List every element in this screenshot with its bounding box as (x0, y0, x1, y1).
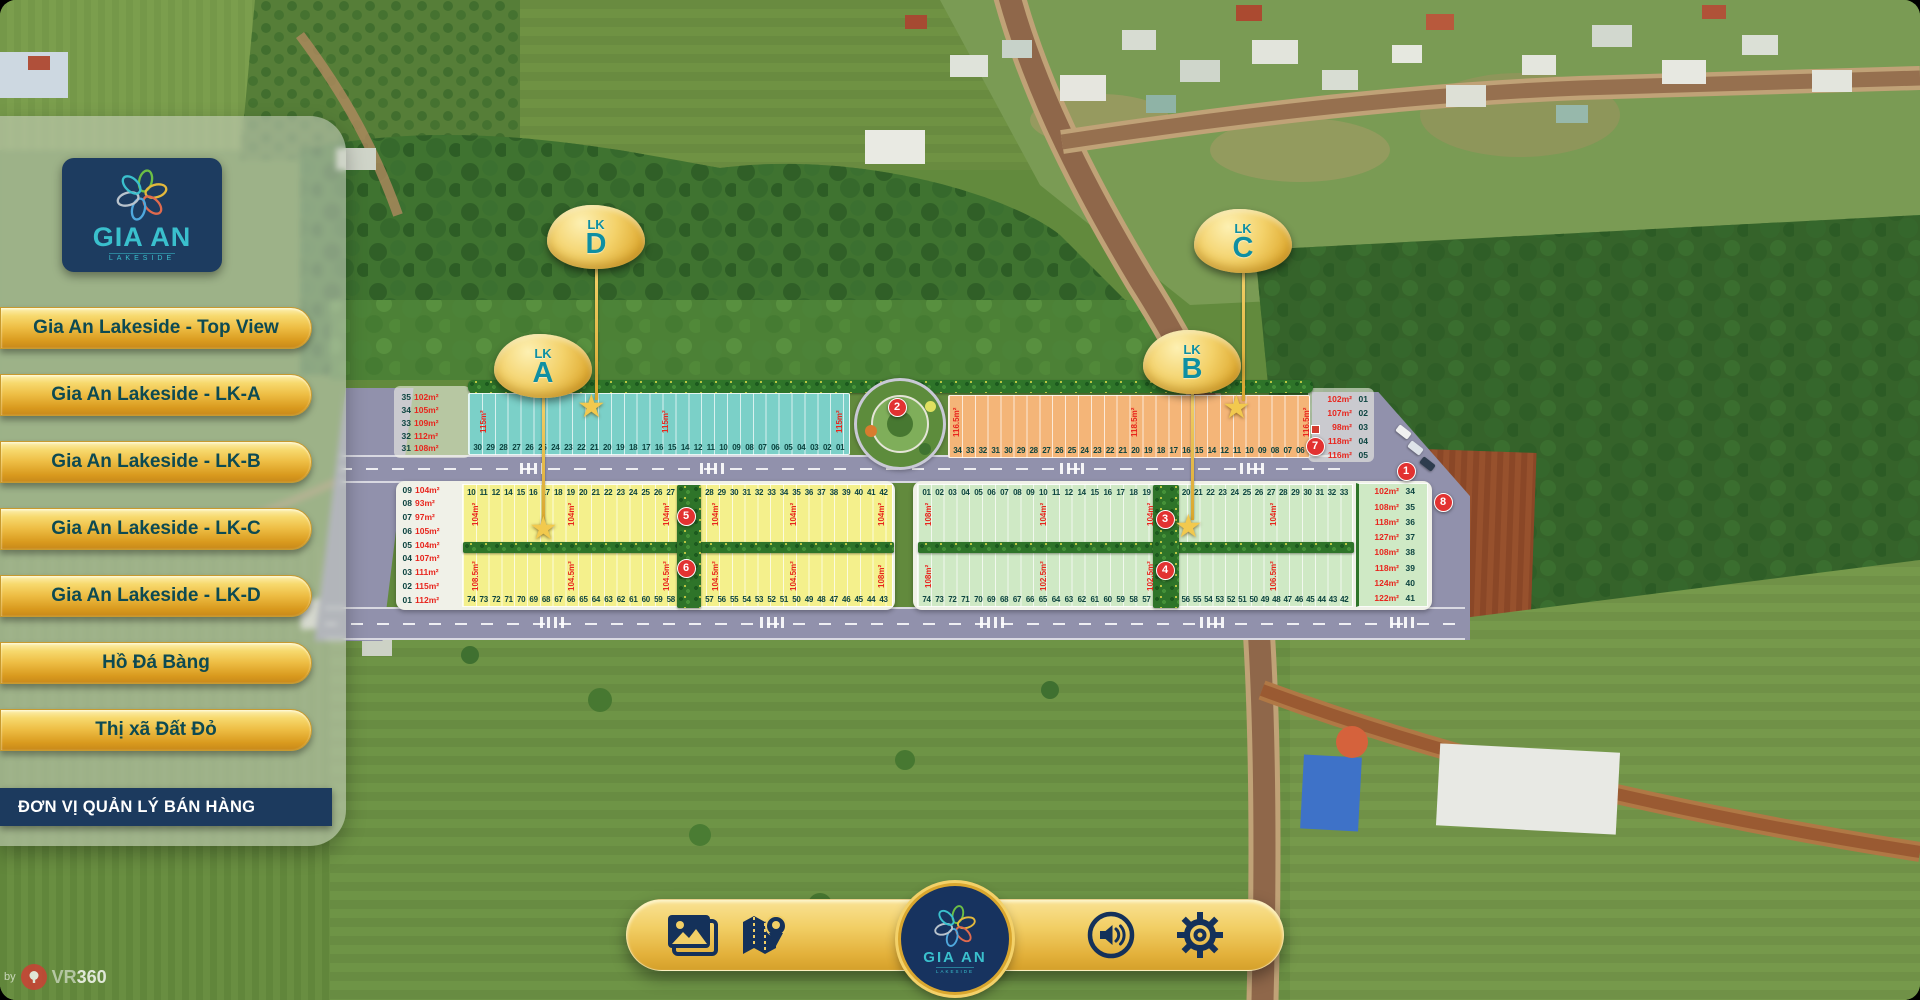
settings-button[interactable] (1175, 910, 1225, 960)
poi-marker-6[interactable]: 6 (677, 559, 696, 578)
poi-marker-5[interactable]: 5 (677, 507, 696, 526)
balloon-label-letter: D (586, 232, 607, 257)
parked-car (1419, 456, 1436, 472)
brand-name: GIA AN (93, 224, 192, 251)
poi-marker-7[interactable]: 7 (1306, 437, 1325, 456)
balloon-stem-lk-a (542, 395, 545, 522)
balloon-label-letter: C (1233, 236, 1254, 261)
balloon-lk-a[interactable]: LKA (494, 334, 592, 398)
balloon-label-letter: B (1182, 357, 1203, 382)
audio-icon (1087, 911, 1135, 959)
poi-marker-2[interactable]: 2 (888, 398, 907, 417)
entrance-flag (1311, 425, 1320, 434)
watermark-prefix: by (4, 971, 16, 983)
balloon-stem-lk-c (1242, 270, 1245, 401)
audio-button[interactable] (1087, 911, 1135, 959)
sidebar-item-lk-a[interactable]: Gia An Lakeside - LK-A (0, 374, 312, 416)
balloon-stem-lk-b (1191, 391, 1194, 520)
gia-an-flower-logo (931, 904, 979, 948)
brand-subtitle: LAKESIDE (109, 253, 175, 262)
sidebar-panel: GIA AN LAKESIDE Gia An Lakeside - Top Vi… (0, 116, 346, 846)
project-logo-card: GIA AN LAKESIDE (62, 158, 222, 272)
bottom-toolbar: GIA AN LAKESIDE (626, 899, 1284, 971)
poi-marker-3[interactable]: 3 (1156, 510, 1175, 529)
gallery-icon (665, 912, 719, 958)
sidebar-item-lk-c[interactable]: Gia An Lakeside - LK-C (0, 508, 312, 550)
poi-marker-1[interactable]: 1 (1397, 462, 1416, 481)
gallery-button[interactable] (665, 912, 719, 958)
star-marker-lk-a[interactable]: ★ (529, 512, 558, 544)
sidebar-item-lk-d[interactable]: Gia An Lakeside - LK-D (0, 575, 312, 617)
poi-marker-4[interactable]: 4 (1156, 561, 1175, 580)
star-marker-lk-d[interactable]: ★ (577, 390, 606, 422)
brand-subtitle: LAKESIDE (936, 967, 974, 974)
vr360-watermark: by VR360 (4, 964, 107, 990)
balloon-stem-lk-d (595, 266, 598, 400)
minimap-button[interactable] (739, 910, 789, 960)
poi-marker-8[interactable]: 8 (1434, 493, 1453, 512)
balloon-label-letter: A (533, 361, 554, 386)
sidebar-item-ho-da-bang[interactable]: Hồ Đá Bàng (0, 642, 312, 684)
sidebar-item-top-view[interactable]: Gia An Lakeside - Top View (0, 307, 312, 349)
vr360-badge-icon (21, 964, 47, 990)
star-marker-lk-c[interactable]: ★ (1222, 391, 1251, 423)
sidebar-item-thi-xa-dat-do[interactable]: Thị xã Đất Đỏ (0, 709, 312, 751)
map-location-icon (739, 910, 789, 960)
gear-icon (1175, 910, 1225, 960)
gia-an-flower-logo (113, 168, 171, 222)
vr360-brand: VR360 (52, 968, 107, 986)
virtual-tour-stage: 3029282726252423222120191817161514121110… (0, 0, 1920, 1000)
balloon-lk-d[interactable]: LKD (547, 205, 645, 269)
sales-manager-button[interactable]: ĐƠN VỊ QUẢN LÝ BÁN HÀNG (0, 788, 332, 826)
star-marker-lk-b[interactable]: ★ (1174, 510, 1203, 542)
brand-name: GIA AN (923, 950, 986, 965)
center-logo-button[interactable]: GIA AN LAKESIDE (898, 883, 1012, 995)
balloon-lk-b[interactable]: LKB (1143, 330, 1241, 394)
parked-car (1395, 424, 1412, 440)
parked-car (1407, 440, 1424, 456)
balloon-lk-c[interactable]: LKC (1194, 209, 1292, 273)
sidebar-item-lk-b[interactable]: Gia An Lakeside - LK-B (0, 441, 312, 483)
